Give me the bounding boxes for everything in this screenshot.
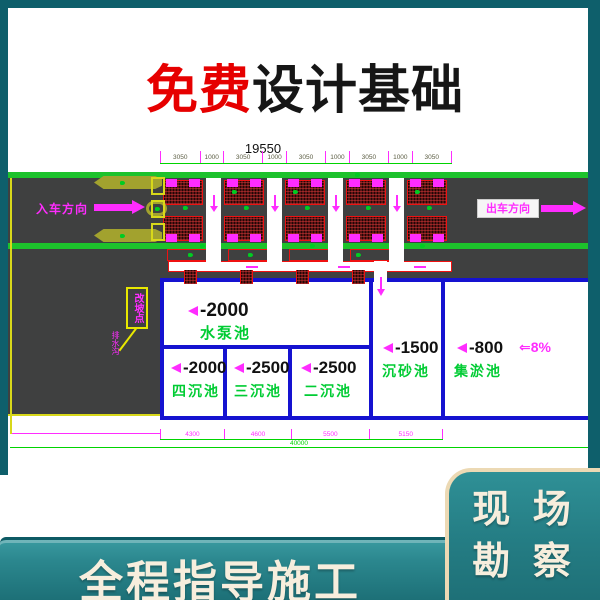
dim-segment: 3050	[349, 151, 389, 163]
frame-right-band	[588, 0, 600, 475]
grate-block	[346, 216, 386, 241]
dimension-total-bottom: 40000	[10, 438, 588, 448]
green-mark	[155, 207, 160, 211]
promo-image: 免费设计基础 19550 3050 1000 3050 1000 3050 10…	[0, 0, 600, 600]
pool-wall	[441, 282, 445, 420]
level-arrow-icon	[229, 363, 244, 373]
magenta-line	[10, 433, 160, 434]
dimension-chain-top: 3050 1000 3050 1000 3050 1000 3050 1000 …	[160, 151, 452, 164]
exit-arrow-icon	[541, 202, 587, 216]
green-mark	[415, 190, 420, 194]
dim-segment: 1000	[388, 151, 411, 163]
level-arrow-icon	[166, 363, 181, 373]
green-mark	[310, 244, 315, 248]
dim-segment: 3050	[160, 151, 200, 163]
flow-arrow-icon	[338, 266, 350, 268]
pool-level-label: -1500	[378, 338, 438, 358]
level-arrow-icon	[183, 306, 198, 316]
grate-block	[407, 180, 447, 205]
drain-channel	[206, 178, 221, 262]
green-mark	[200, 244, 205, 248]
level-arrow-icon	[378, 343, 393, 353]
drain-channel	[267, 178, 282, 262]
drain-channel	[389, 178, 404, 262]
grate-block	[346, 180, 386, 205]
yellow-marker-box	[151, 177, 165, 195]
pool-wall	[369, 282, 373, 420]
level-arrow-icon	[296, 363, 311, 373]
pool-level-label: -2000	[166, 358, 226, 378]
pool-name: 三沉池	[234, 381, 282, 401]
green-mark	[305, 206, 310, 210]
slope-label: ⇐8%	[519, 339, 551, 356]
flow-arrow-icon	[246, 266, 258, 268]
callout-label: 改坡点	[126, 287, 148, 329]
dim-segment: 1000	[262, 151, 285, 163]
pool-wall	[164, 345, 373, 349]
title-highlight: 免费	[146, 62, 252, 120]
green-mark	[420, 244, 425, 248]
pool-name: 四沉池	[172, 381, 220, 401]
green-mark	[427, 206, 432, 210]
green-mark	[188, 253, 193, 257]
grate-block	[163, 180, 203, 205]
grate-block	[163, 216, 203, 241]
entry-direction-label: 入车方向	[36, 200, 88, 217]
green-mark	[355, 173, 360, 177]
pool-name: 二沉池	[304, 381, 352, 401]
green-mark	[183, 206, 188, 210]
inlet-stub	[240, 270, 253, 284]
yellow-edge-line	[10, 178, 12, 415]
grate-module	[221, 179, 267, 242]
page-title: 免费设计基础	[120, 48, 490, 110]
pool-level-label: -2500	[229, 358, 289, 378]
yellow-bottom-line	[8, 414, 160, 416]
grate-block	[285, 216, 325, 241]
inlet-channel	[374, 261, 387, 302]
dim-segment: 1000	[325, 151, 348, 163]
entry-arrow-icon	[94, 201, 146, 215]
inlet-stub	[184, 270, 197, 284]
exit-direction-label: 出车方向	[477, 199, 539, 218]
grate-module	[282, 179, 328, 242]
corner-badge-line2: 勘 察	[449, 536, 600, 588]
green-mark	[248, 253, 253, 257]
green-mark	[232, 190, 237, 194]
collector-channel	[168, 261, 452, 272]
pool-name: 沉砂池	[382, 361, 430, 381]
callout-small-label: 排水沟	[109, 331, 121, 371]
yellow-tick	[10, 415, 12, 434]
frame-left-band	[0, 0, 8, 475]
pool-level-label: -2500	[296, 358, 356, 378]
corner-badge: 现 场 勘 察	[445, 468, 600, 600]
title-rest: 设计基础	[252, 62, 464, 120]
footer-banner-label: 全程指导施工	[20, 546, 420, 600]
drain-channel	[328, 178, 343, 262]
grate-module	[160, 179, 206, 242]
green-mark	[366, 206, 371, 210]
pool-level-label: -800	[452, 338, 503, 358]
grate-block	[407, 216, 447, 241]
corner-badge-line1: 现 场	[449, 484, 600, 536]
green-mark	[244, 206, 249, 210]
pool-level-label: -2000	[183, 300, 249, 322]
dim-segment: 3050	[286, 151, 326, 163]
green-mark	[356, 253, 361, 257]
level-arrow-icon	[452, 343, 467, 353]
yellow-marker-box	[151, 223, 165, 241]
green-mark	[293, 190, 298, 194]
inlet-stub	[296, 270, 309, 284]
pool-name: 水泵池	[200, 322, 251, 343]
flow-arrow-icon	[414, 266, 426, 268]
grate-module	[343, 179, 389, 242]
dim-segment: 3050	[223, 151, 263, 163]
pool-name: 集淤池	[454, 361, 502, 381]
dim-segment: 3050	[412, 151, 453, 163]
grate-module	[404, 179, 450, 242]
grate-block	[224, 180, 264, 205]
frame-top-band	[0, 0, 600, 8]
green-mark	[120, 234, 125, 238]
grate-block	[285, 180, 325, 205]
dim-segment: 1000	[200, 151, 223, 163]
green-mark	[120, 181, 125, 185]
grate-block	[224, 216, 264, 241]
inlet-stub	[352, 270, 365, 284]
